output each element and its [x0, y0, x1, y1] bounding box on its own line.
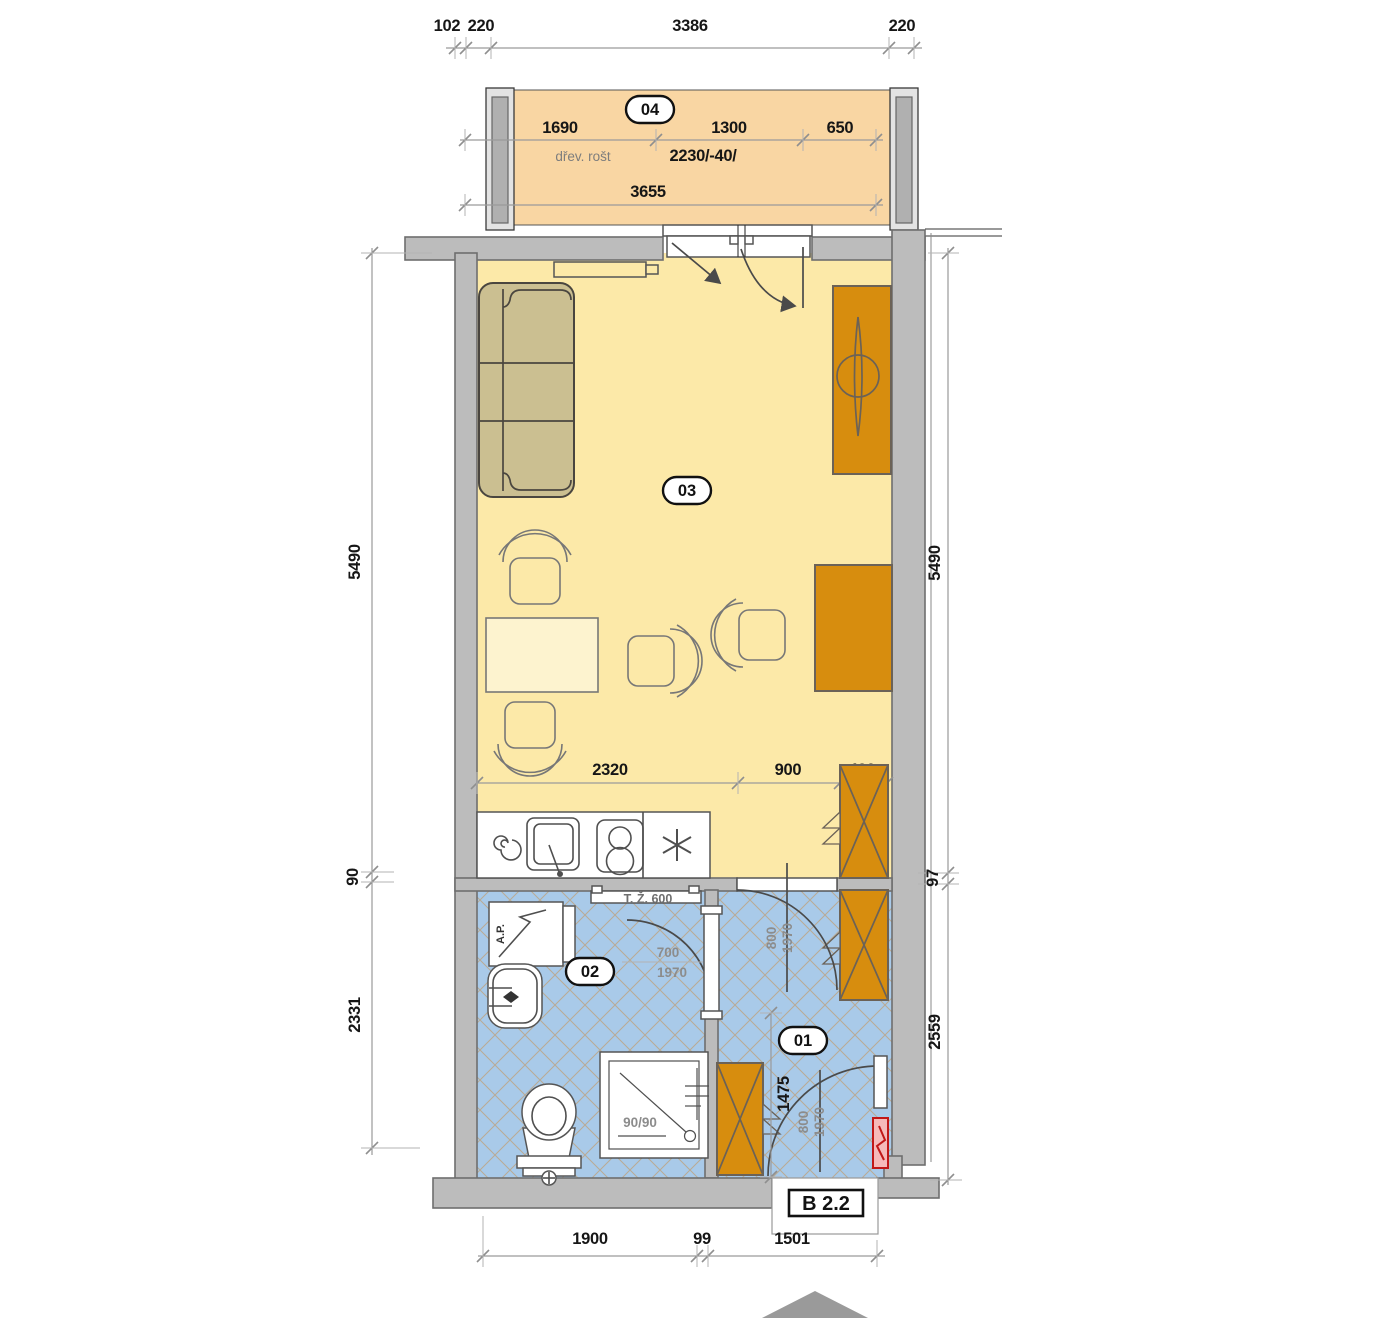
electrical-panel: [873, 1118, 888, 1168]
floor-plan-drawing: 102 220 3386 220 1690 1300 650 dřev. roš…: [0, 0, 1380, 1320]
dim-label: 2331: [346, 997, 364, 1033]
washing-machine: A.P.: [489, 902, 575, 966]
kitchenette: [477, 812, 710, 878]
room-number-balcony: 04: [641, 101, 660, 119]
wall-bottom: [433, 1178, 772, 1208]
wardrobe-mirror: [833, 286, 891, 474]
dim-label: 5490: [346, 544, 364, 580]
dim-label: 650: [827, 119, 854, 137]
wall-bottom-right: [877, 1178, 939, 1198]
dim-label: 220: [889, 17, 916, 35]
toilet: [517, 1084, 581, 1185]
shelf: [554, 262, 658, 277]
sofa: [479, 283, 574, 497]
room-number-bath: 02: [581, 963, 599, 981]
exterior-wall-top-left: [405, 237, 663, 260]
dim-label: 102: [434, 17, 461, 35]
door-size: 1970: [657, 965, 687, 980]
balcony-note: dřev. rošt: [555, 149, 611, 164]
dim-label: 1475: [775, 1076, 793, 1112]
dim-label: 90: [344, 868, 362, 886]
washing-machine-label: A.P.: [495, 924, 507, 944]
wall-left: [455, 253, 477, 1185]
meter-shaft: [874, 1056, 887, 1108]
dim-label: 1900: [572, 1230, 608, 1248]
wall-right: [892, 230, 925, 1165]
door-size: 1970: [812, 1107, 827, 1137]
balcony-pier-right-core: [896, 97, 912, 223]
door-size: 1970: [780, 923, 795, 953]
floor-plan-page: 102 220 3386 220 1690 1300 650 dřev. roš…: [0, 0, 1380, 1320]
shower: 90/90: [600, 1052, 709, 1158]
dim-label: 900: [775, 761, 802, 779]
entry-arrow: [762, 1291, 868, 1318]
dim-label: 97: [924, 869, 942, 887]
door-size: 800: [796, 1111, 811, 1134]
dim-top: 102 220 3386 220: [434, 17, 922, 59]
unit-label-group: B 2.2: [789, 1190, 863, 1216]
dim-label: 5490: [926, 545, 944, 581]
room-number-hall: 01: [794, 1032, 812, 1050]
dim-label: 2559: [926, 1014, 944, 1050]
dim-label: 1690: [542, 119, 578, 137]
dim-label: 220: [468, 17, 495, 35]
shower-size-label: 90/90: [623, 1115, 657, 1130]
dim-label: 3386: [672, 17, 708, 35]
dim-label: 99: [693, 1230, 711, 1248]
door-size: 700: [657, 945, 680, 960]
washbasin: [488, 964, 542, 1028]
dim-left: 5490 90 2331: [344, 247, 432, 1155]
dim-label: 1300: [711, 119, 747, 137]
balcony-opening-dim: 2230/-40/: [669, 147, 737, 165]
desk: [815, 565, 892, 691]
balcony-pier-left-core: [492, 97, 508, 223]
dim-label: 1501: [774, 1230, 810, 1248]
towel-rail-label: T. Ž. 600: [624, 891, 673, 906]
dining-table: [486, 618, 598, 692]
door-leaf: [704, 913, 719, 1012]
dim-label: 2320: [592, 761, 628, 779]
room-number-living: 03: [678, 482, 696, 500]
dim-label: 3655: [630, 183, 666, 201]
unit-label: B 2.2: [802, 1193, 850, 1215]
door-size: 800: [764, 927, 779, 950]
